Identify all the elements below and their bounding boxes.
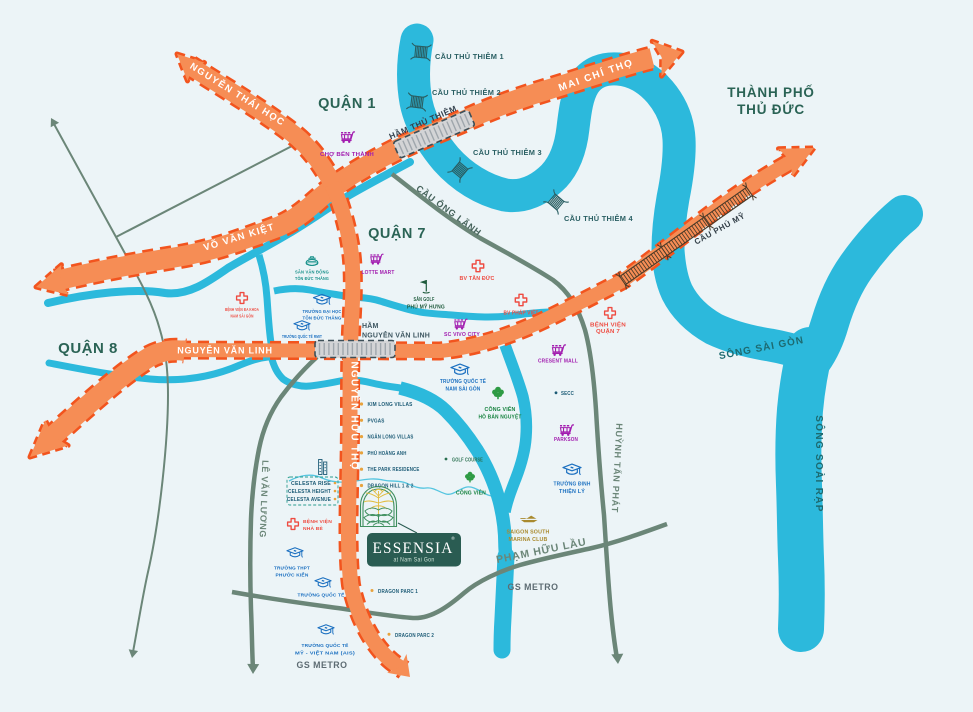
svg-text:DRAGON PARC 1: DRAGON PARC 1 [378, 589, 418, 595]
svg-text:SÔNG SOÀI RẠP: SÔNG SOÀI RẠP [813, 415, 826, 512]
svg-text:QUẬN 7: QUẬN 7 [596, 328, 620, 335]
svg-text:THIỆN LÝ: THIỆN LÝ [559, 487, 585, 495]
svg-text:SÂN GOLF: SÂN GOLF [414, 296, 435, 303]
svg-text:KIM LONG VILLAS: KIM LONG VILLAS [368, 402, 413, 408]
svg-text:TÔN ĐỨC THẮNG: TÔN ĐỨC THẮNG [295, 274, 329, 281]
svg-text:CÔNG VIÊN: CÔNG VIÊN [456, 489, 486, 497]
svg-text:NGÂN LONG VILLAS: NGÂN LONG VILLAS [368, 434, 414, 441]
svg-text:PVGAS: PVGAS [368, 418, 385, 424]
svg-text:ESSENSIA: ESSENSIA [373, 540, 454, 557]
svg-text:CRESENT MALL: CRESENT MALL [538, 359, 578, 365]
svg-text:GS METRO: GS METRO [297, 660, 348, 670]
svg-text:PHÚ HOÀNG ANH: PHÚ HOÀNG ANH [368, 450, 407, 457]
svg-text:CELESTA RISE: CELESTA RISE [291, 481, 331, 487]
svg-text:PHÚ MỸ HƯNG: PHÚ MỸ HƯNG [407, 304, 445, 311]
svg-text:HỒ BÁN NGUYỆT: HỒ BÁN NGUYỆT [479, 413, 522, 421]
svg-text:LOTTE MART: LOTTE MART [362, 270, 395, 276]
svg-text:SÂN VẬN ĐỘNG: SÂN VẬN ĐỘNG [295, 268, 329, 275]
svg-text:BV TÂN ĐỨC: BV TÂN ĐỨC [460, 275, 496, 282]
svg-text:MARINA CLUB: MARINA CLUB [509, 537, 548, 543]
svg-text:CÔNG VIÊN: CÔNG VIÊN [485, 405, 516, 413]
svg-text:CẦU THỦ THIÊM 3: CẦU THỦ THIÊM 3 [473, 147, 542, 157]
svg-text:GS METRO: GS METRO [508, 582, 559, 592]
svg-text:NAM SÀI GÒN: NAM SÀI GÒN [446, 385, 481, 393]
svg-text:NGUYỄN VĂN LINH: NGUYỄN VĂN LINH [177, 345, 273, 356]
svg-text:TRƯỜNG QUỐC TẾ: TRƯỜNG QUỐC TẾ [440, 377, 486, 385]
svg-text:NAM SÀI GÒN: NAM SÀI GÒN [231, 312, 254, 319]
svg-text:PARKSON: PARKSON [554, 437, 578, 443]
svg-text:CẦU THỦ THIÊM 2: CẦU THỦ THIÊM 2 [432, 87, 501, 97]
svg-text:THÀNH PHỐ: THÀNH PHỐ [727, 85, 814, 100]
svg-text:GOLF COURSE: GOLF COURSE [452, 458, 483, 464]
svg-text:DRAGON PARC 2: DRAGON PARC 2 [395, 633, 434, 639]
svg-text:CELESTA HEIGHT: CELESTA HEIGHT [288, 489, 332, 495]
svg-text:TRƯỜNG ĐẠI HỌC: TRƯỜNG ĐẠI HỌC [303, 307, 342, 314]
svg-text:BV PHÁP VIỆT: BV PHÁP VIỆT [504, 309, 539, 317]
svg-text:QUẬN 8: QUẬN 8 [58, 339, 118, 357]
svg-text:THE PARK RESIDENCE: THE PARK RESIDENCE [368, 467, 420, 473]
svg-text:NGUYỄN HỮU THỌ: NGUYỄN HỮU THỌ [349, 362, 362, 471]
svg-text:TRƯỜNG ĐINH: TRƯỜNG ĐINH [554, 480, 591, 488]
svg-text:CẦU THỦ THIÊM 4: CẦU THỦ THIÊM 4 [564, 213, 634, 223]
svg-text:QUẬN 7: QUẬN 7 [368, 224, 426, 242]
svg-text:SECC: SECC [561, 391, 574, 397]
svg-text:CHỢ BẾN THÀNH: CHỢ BẾN THÀNH [320, 151, 374, 158]
svg-text:CELESTA AVENUE: CELESTA AVENUE [287, 497, 331, 503]
svg-text:BỆNH VIỆN ĐA KHOA: BỆNH VIỆN ĐA KHOA [225, 305, 259, 312]
svg-text:CẦU THỦ THIÊM 1: CẦU THỦ THIÊM 1 [435, 51, 504, 61]
svg-text:SC VIVO CITY: SC VIVO CITY [444, 332, 480, 338]
svg-text:THỦ ĐỨC: THỦ ĐỨC [737, 102, 805, 117]
svg-text:at Nam Sai Gon: at Nam Sai Gon [394, 558, 435, 564]
svg-text:BỆNH VIỆN: BỆNH VIỆN [590, 321, 626, 329]
svg-text:QUẬN 1: QUẬN 1 [318, 94, 376, 112]
svg-text:TÔN ĐỨC THẮNG: TÔN ĐỨC THẮNG [303, 314, 342, 321]
svg-text:SAIGON SOUTH: SAIGON SOUTH [507, 530, 550, 536]
svg-text:TRƯỜNG QUỐC TẾ RMIT: TRƯỜNG QUỐC TẾ RMIT [282, 332, 322, 339]
svg-text:NGUYỄN VĂN LINH: NGUYỄN VĂN LINH [362, 331, 430, 340]
